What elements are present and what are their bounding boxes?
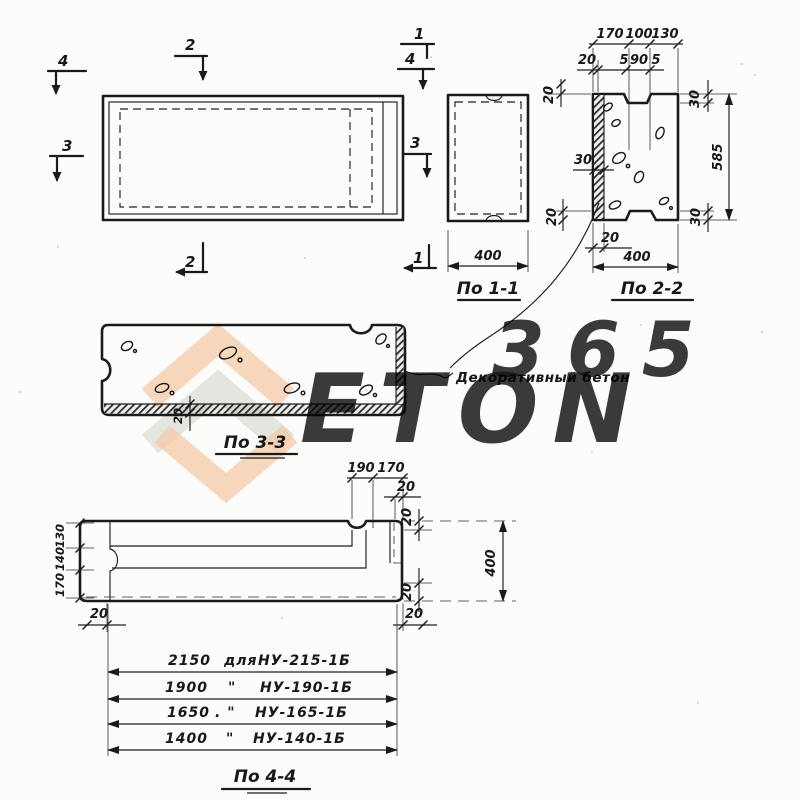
row-length: 1650 <box>167 705 210 721</box>
dim-20: 20 <box>405 607 423 622</box>
row-conj: . " <box>215 705 236 721</box>
dim-20: 20 <box>397 480 415 495</box>
dim-100: 100 <box>625 27 652 42</box>
dim-400-rotated: 400 <box>484 549 499 577</box>
decorative-layer-band <box>594 95 604 219</box>
section-2-2-label: По 2-2 <box>621 279 684 299</box>
dim-20: 20 <box>578 53 596 68</box>
dim-140-rotated: 140 <box>53 547 67 571</box>
length-row: 1650 . " НУ-165-1Б <box>167 705 348 721</box>
dim-130-rotated: 130 <box>53 524 67 548</box>
section-mark-label: 2 <box>185 253 195 271</box>
section-mark-label: 1 <box>414 25 424 43</box>
dim-585-rotated: 585 <box>711 143 726 170</box>
dim-20-rotated: 20 <box>545 208 560 226</box>
row-length: 2150 <box>168 653 211 669</box>
row-conj: " <box>228 680 236 696</box>
dim-20: 20 <box>90 607 108 622</box>
dim-20: 20 <box>601 231 619 246</box>
dim-30-rotated: 30 <box>688 90 703 108</box>
row-length: 1400 <box>165 731 208 747</box>
dim-170: 170 <box>596 27 623 42</box>
dim-30-rotated: 30 <box>689 208 704 226</box>
dim-20-rotated: 20 <box>400 583 415 601</box>
dim-20-rotated: 20 <box>542 86 557 104</box>
scanned-drawing-page: 4 2 1 4 3 3 2 1 <box>0 0 800 800</box>
section-4-4-label: По 4-4 <box>234 767 297 787</box>
dim-170-rotated: 170 <box>53 573 67 597</box>
row-conj: для <box>223 653 258 669</box>
row-mark: НУ-190-1Б <box>260 680 353 696</box>
row-mark: НУ-215-1Б <box>258 653 351 669</box>
dim-130: 130 <box>651 27 678 42</box>
row-mark: НУ-165-1Б <box>255 705 348 721</box>
section-mark-label: 3 <box>410 134 420 152</box>
length-row: 2150 для НУ-215-1Б <box>168 653 351 669</box>
dim-90: 90 <box>630 53 648 68</box>
section-mark-label: 4 <box>57 52 68 70</box>
section-mark-label: 3 <box>62 137 72 155</box>
row-conj: " <box>226 731 234 747</box>
dim-5: 5 <box>651 53 660 68</box>
dim-width-400: 400 <box>622 250 650 265</box>
row-mark: НУ-140-1Б <box>253 731 346 747</box>
watermark-number: 365 <box>492 305 717 394</box>
dim-30: 30 <box>574 153 592 168</box>
section-mark-label: 1 <box>413 249 423 267</box>
section-1-1-label: По 1-1 <box>457 279 520 299</box>
section-mark-label: 2 <box>185 36 195 54</box>
row-length: 1900 <box>165 680 208 696</box>
dim-width-400: 400 <box>473 249 501 264</box>
drawing-canvas: 4 2 1 4 3 3 2 1 <box>0 0 800 800</box>
section-mark-label: 4 <box>404 50 415 68</box>
dim-5: 5 <box>619 53 628 68</box>
length-row: 1400 " НУ-140-1Б <box>165 731 346 747</box>
dim-20-rotated: 20 <box>400 508 415 526</box>
